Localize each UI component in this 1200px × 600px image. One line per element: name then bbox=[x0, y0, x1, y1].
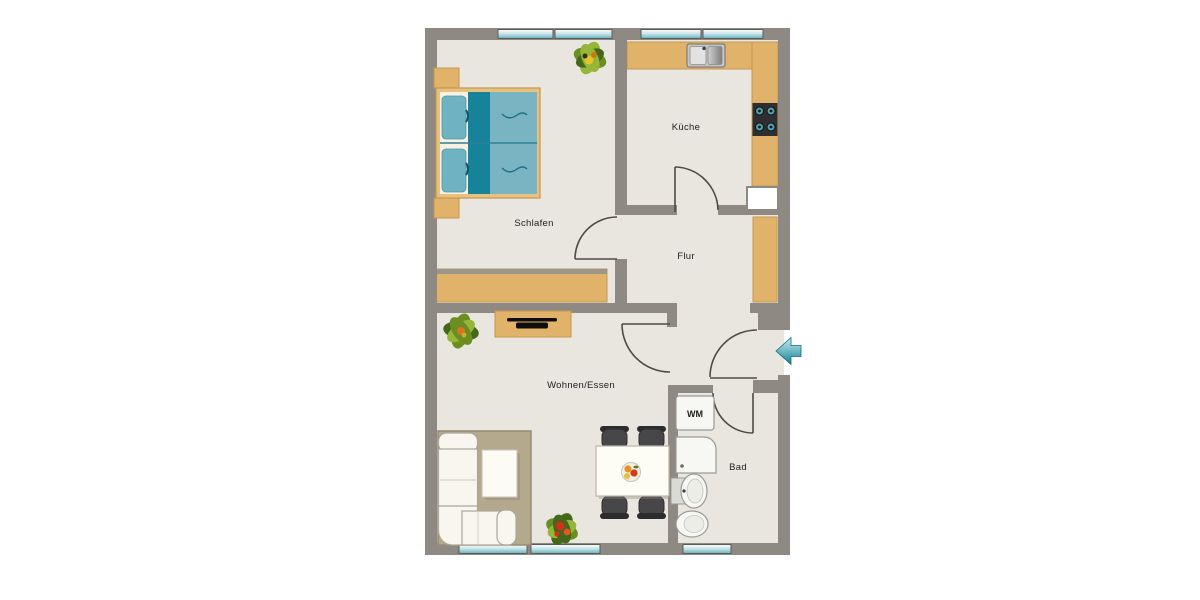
tv bbox=[507, 318, 557, 322]
wall-left bbox=[425, 28, 437, 555]
entrance-jamb-top bbox=[758, 312, 780, 330]
window-bath bbox=[683, 545, 731, 554]
entrance-jamb-bottom bbox=[753, 380, 790, 393]
wall-right-upper bbox=[778, 28, 790, 330]
fridge bbox=[747, 187, 778, 210]
wall-right-lower bbox=[778, 375, 790, 555]
shower bbox=[676, 437, 716, 473]
sofa-seat-bottom bbox=[462, 511, 502, 545]
nightstand-bottom bbox=[434, 198, 459, 218]
bed-pillow-2 bbox=[442, 149, 466, 192]
chair bbox=[637, 496, 666, 519]
hall-wardrobe bbox=[753, 217, 777, 302]
double-bed bbox=[436, 88, 540, 198]
label-schlafen: Schlafen bbox=[514, 218, 553, 229]
coffee-table bbox=[482, 450, 520, 500]
stove bbox=[753, 103, 778, 136]
faucet-dot bbox=[682, 489, 685, 492]
toilet bbox=[676, 511, 708, 537]
floor-plan-page: WM Schlafen Küche Flur Wohnen/Essen Bad bbox=[0, 0, 1200, 600]
chair bbox=[600, 496, 629, 519]
bath-sink bbox=[671, 474, 707, 508]
bedroom-wardrobe-edge bbox=[436, 269, 607, 274]
faucet-dot bbox=[702, 47, 705, 50]
window-bedroom-2 bbox=[555, 30, 612, 39]
window-kitchen-2 bbox=[703, 30, 763, 39]
wall-bedroom-kitchen bbox=[615, 38, 627, 215]
sofa-armrest-right bbox=[497, 510, 516, 545]
wall-kitchen-south-left bbox=[615, 205, 677, 215]
label-wohnen-essen: Wohnen/Essen bbox=[547, 380, 615, 391]
tv-base bbox=[516, 323, 548, 329]
kitchen-sink bbox=[687, 44, 725, 67]
label-bad: Bad bbox=[729, 462, 747, 473]
washing-machine: WM bbox=[676, 396, 714, 430]
window-living-1 bbox=[459, 545, 527, 554]
wall-living-door-stub bbox=[667, 313, 677, 327]
floor-plan-drawing: WM Schlafen Küche Flur Wohnen/Essen Bad bbox=[0, 0, 1200, 600]
nightstand-top bbox=[434, 68, 459, 88]
sideboard bbox=[495, 311, 571, 337]
label-flur: Flur bbox=[677, 251, 695, 262]
fruit-bowl bbox=[622, 463, 641, 482]
bed-pillow-1 bbox=[442, 96, 466, 139]
window-kitchen-1 bbox=[641, 30, 701, 39]
wall-bath-top bbox=[668, 385, 713, 393]
wall-hall-niche bbox=[750, 303, 790, 313]
window-bedroom-1 bbox=[498, 30, 553, 39]
label-kueche: Küche bbox=[672, 122, 700, 133]
window-living-2 bbox=[531, 545, 600, 554]
washing-machine-label: WM bbox=[687, 409, 703, 419]
